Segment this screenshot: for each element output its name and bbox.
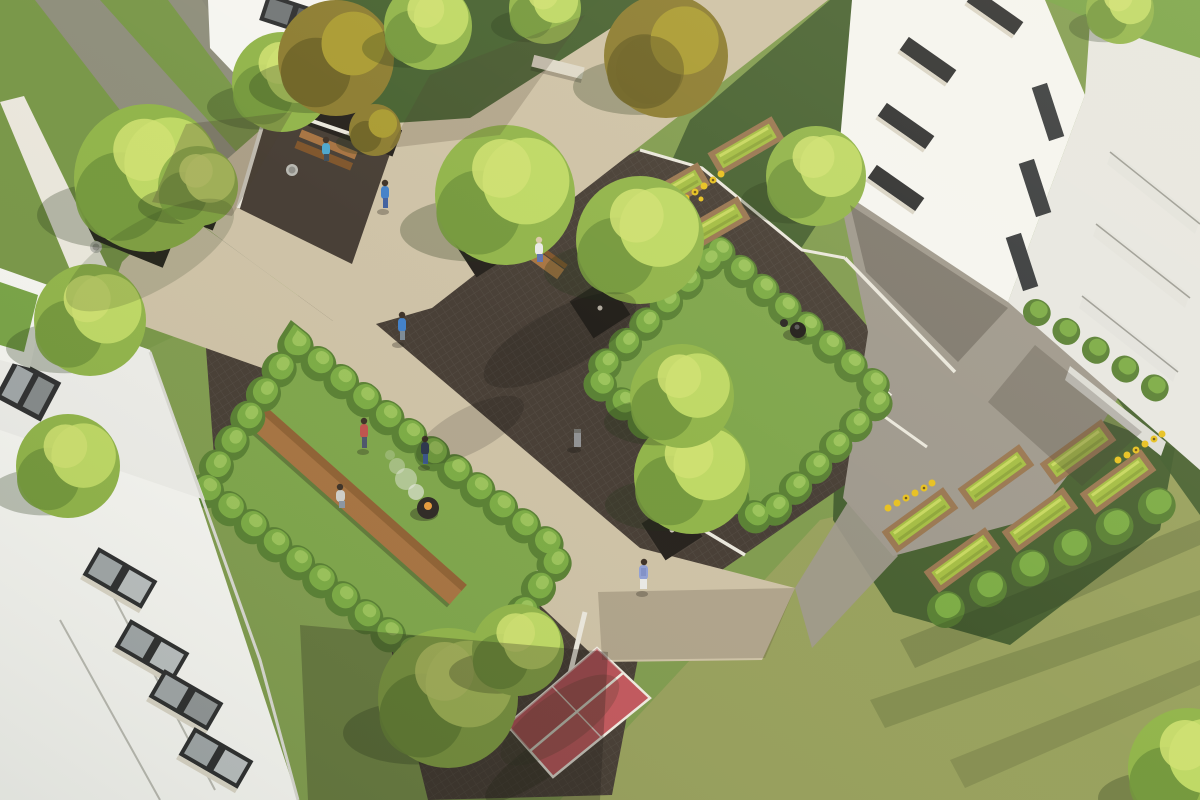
shadows	[0, 0, 1200, 800]
aerial-render: Aerial 3D architectural rendering of a r…	[0, 0, 1200, 800]
courtyard-rendering: Aerial 3D architectural rendering of a r…	[0, 0, 1200, 800]
sunlight-wash	[0, 0, 1200, 800]
